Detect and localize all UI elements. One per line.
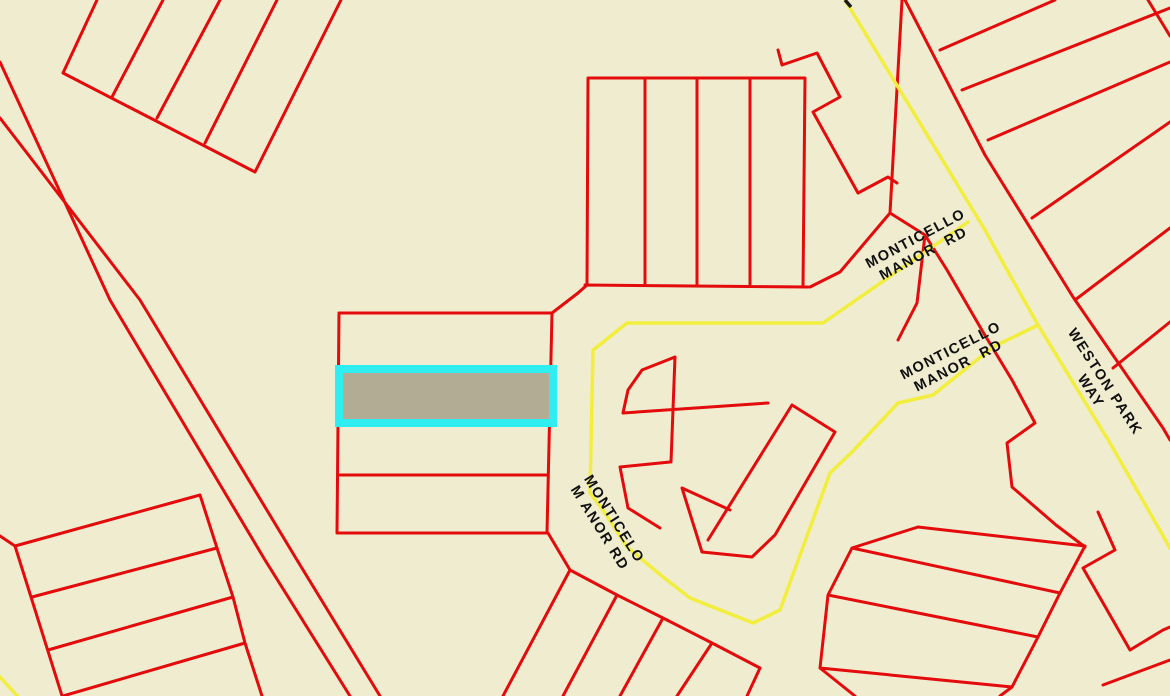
parcel-column-center-left (337, 293, 578, 570)
parcel-block-top-center (578, 78, 808, 293)
parcel-long-line-east-of-weston (905, 0, 1170, 440)
parcel-block-bottom-left (0, 495, 262, 696)
highlighted-parcel[interactable] (339, 369, 553, 423)
parcel-corridor-diagonal (0, 62, 380, 696)
parcel-inner-loop-lots (620, 357, 835, 557)
parcel-block-bottom-center (503, 570, 760, 696)
map-canvas[interactable]: MONTICELLO MANOR RD MONTICELLO MANOR RD … (0, 0, 1170, 696)
parcel-block-bottom-right (820, 527, 1085, 696)
survey-tick-icon (845, 0, 851, 7)
road-fragment-bottom-left (0, 677, 20, 696)
parcel-rungs-east-of-weston (940, 0, 1170, 368)
parcel-zigzag-northeast (778, 50, 897, 193)
map-layers (0, 0, 1170, 696)
road-centerlines-layer (0, 0, 1170, 696)
parcel-block-top-left (63, 0, 341, 172)
parcel-notches-bottom-right (1083, 512, 1170, 685)
road-monticello-manor-loop (590, 222, 1038, 623)
